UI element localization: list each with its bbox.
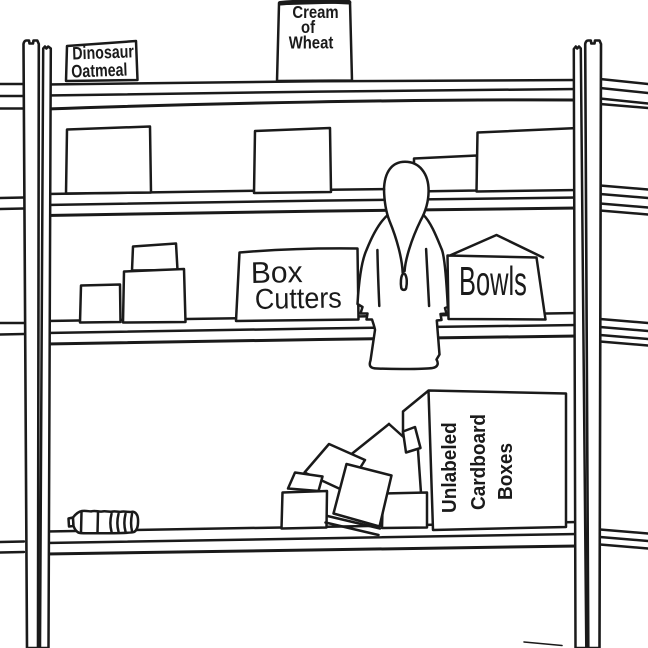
svg-text:Unlabeled: Unlabeled	[439, 422, 462, 513]
svg-text:Cardboard: Cardboard	[468, 414, 491, 510]
svg-text:Cream: Cream	[292, 3, 338, 22]
svg-text:Boxes: Boxes	[495, 443, 518, 500]
svg-text:Oatmeal: Oatmeal	[71, 60, 128, 82]
svg-text:Wheat: Wheat	[289, 33, 334, 52]
svg-text:Bowls: Bowls	[459, 259, 527, 305]
svg-text:Cutters: Cutters	[255, 282, 342, 316]
